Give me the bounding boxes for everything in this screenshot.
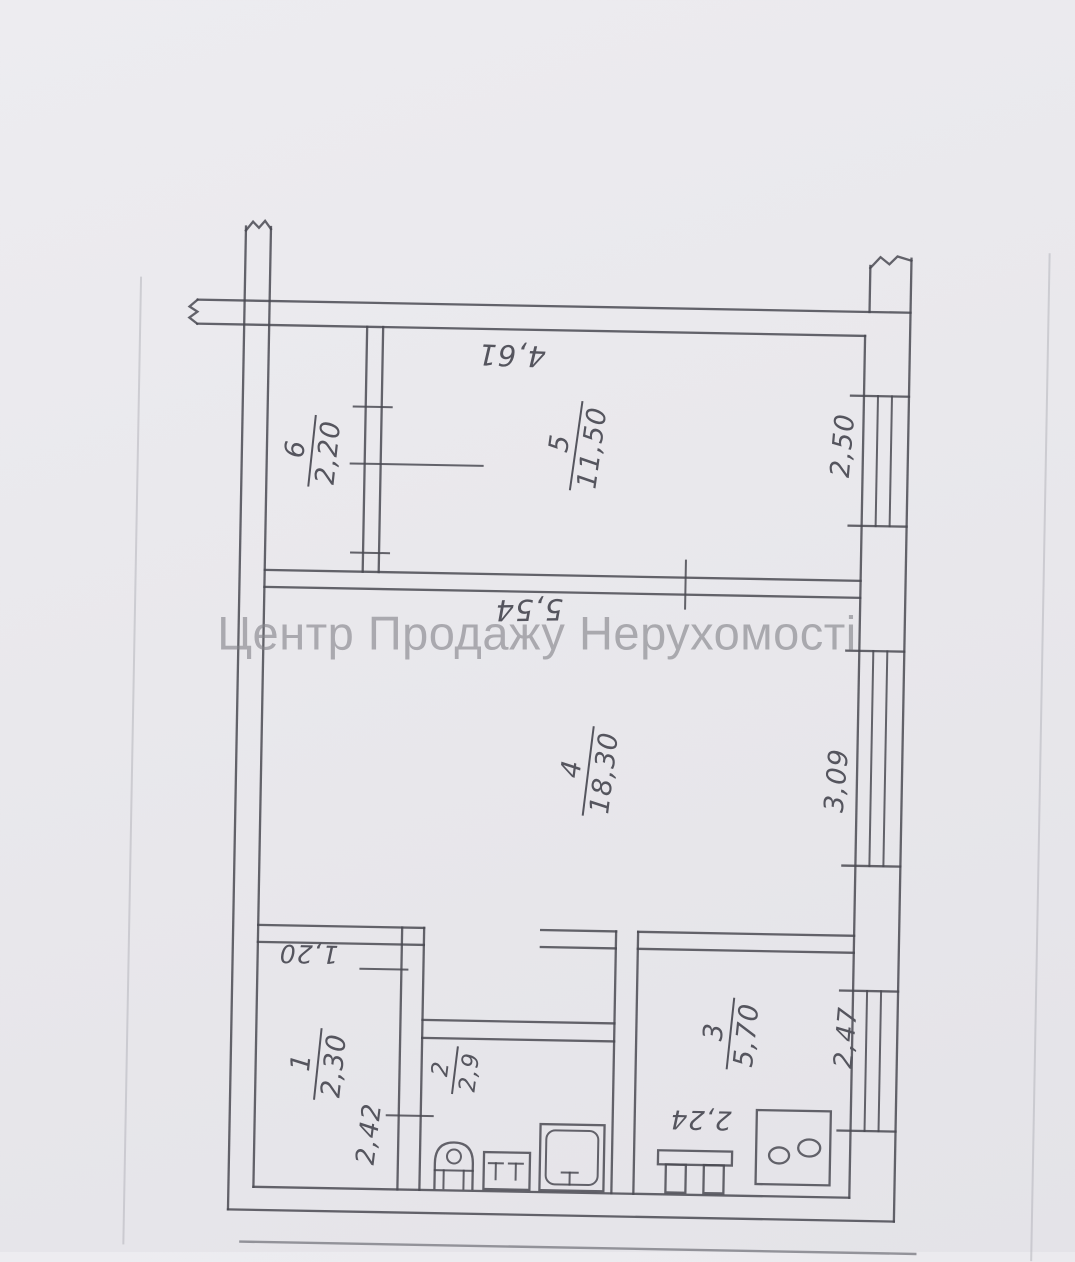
dim-room5-depth: 2,50 — [825, 412, 862, 479]
dim-hall-width: 1,20 — [279, 939, 339, 969]
wall-break-icon — [246, 221, 271, 231]
wall-break-icon — [189, 300, 197, 324]
wall-break-icon — [870, 256, 911, 269]
sink-icon — [483, 1152, 530, 1190]
room-number: 4 — [557, 754, 589, 784]
room-number: 2 — [428, 1056, 456, 1083]
room-label-3: 3 5,70 — [697, 994, 766, 1072]
dim-kitchen-width: 2,24 — [670, 1103, 732, 1134]
dim-top-width: 4,61 — [477, 337, 547, 373]
dim-kitchen-depth: 2,47 — [829, 1006, 864, 1070]
room-number: 1 — [287, 1048, 319, 1077]
bathtub-icon — [539, 1124, 604, 1191]
dim-room4-depth: 3,09 — [819, 747, 856, 814]
room-label-6: 6 2,20 — [278, 412, 347, 490]
room-number: 6 — [281, 435, 313, 464]
room-number: 3 — [699, 1017, 731, 1046]
room-area: 2,9 — [451, 1047, 485, 1098]
room-label-2: 2 2,9 — [426, 1044, 485, 1098]
room-label-4: 4 18,30 — [553, 722, 625, 819]
bathroom-fixtures — [434, 1122, 604, 1191]
watermark: Центр Продажу Нерухомості — [217, 606, 856, 661]
room-number: 5 — [545, 428, 578, 458]
room-label-1: 1 2,30 — [284, 1025, 353, 1103]
room-label-5: 5 11,50 — [540, 397, 614, 495]
kitchen-sink-icon — [657, 1150, 732, 1193]
toilet-icon — [434, 1142, 473, 1189]
stove-icon — [756, 1110, 831, 1185]
